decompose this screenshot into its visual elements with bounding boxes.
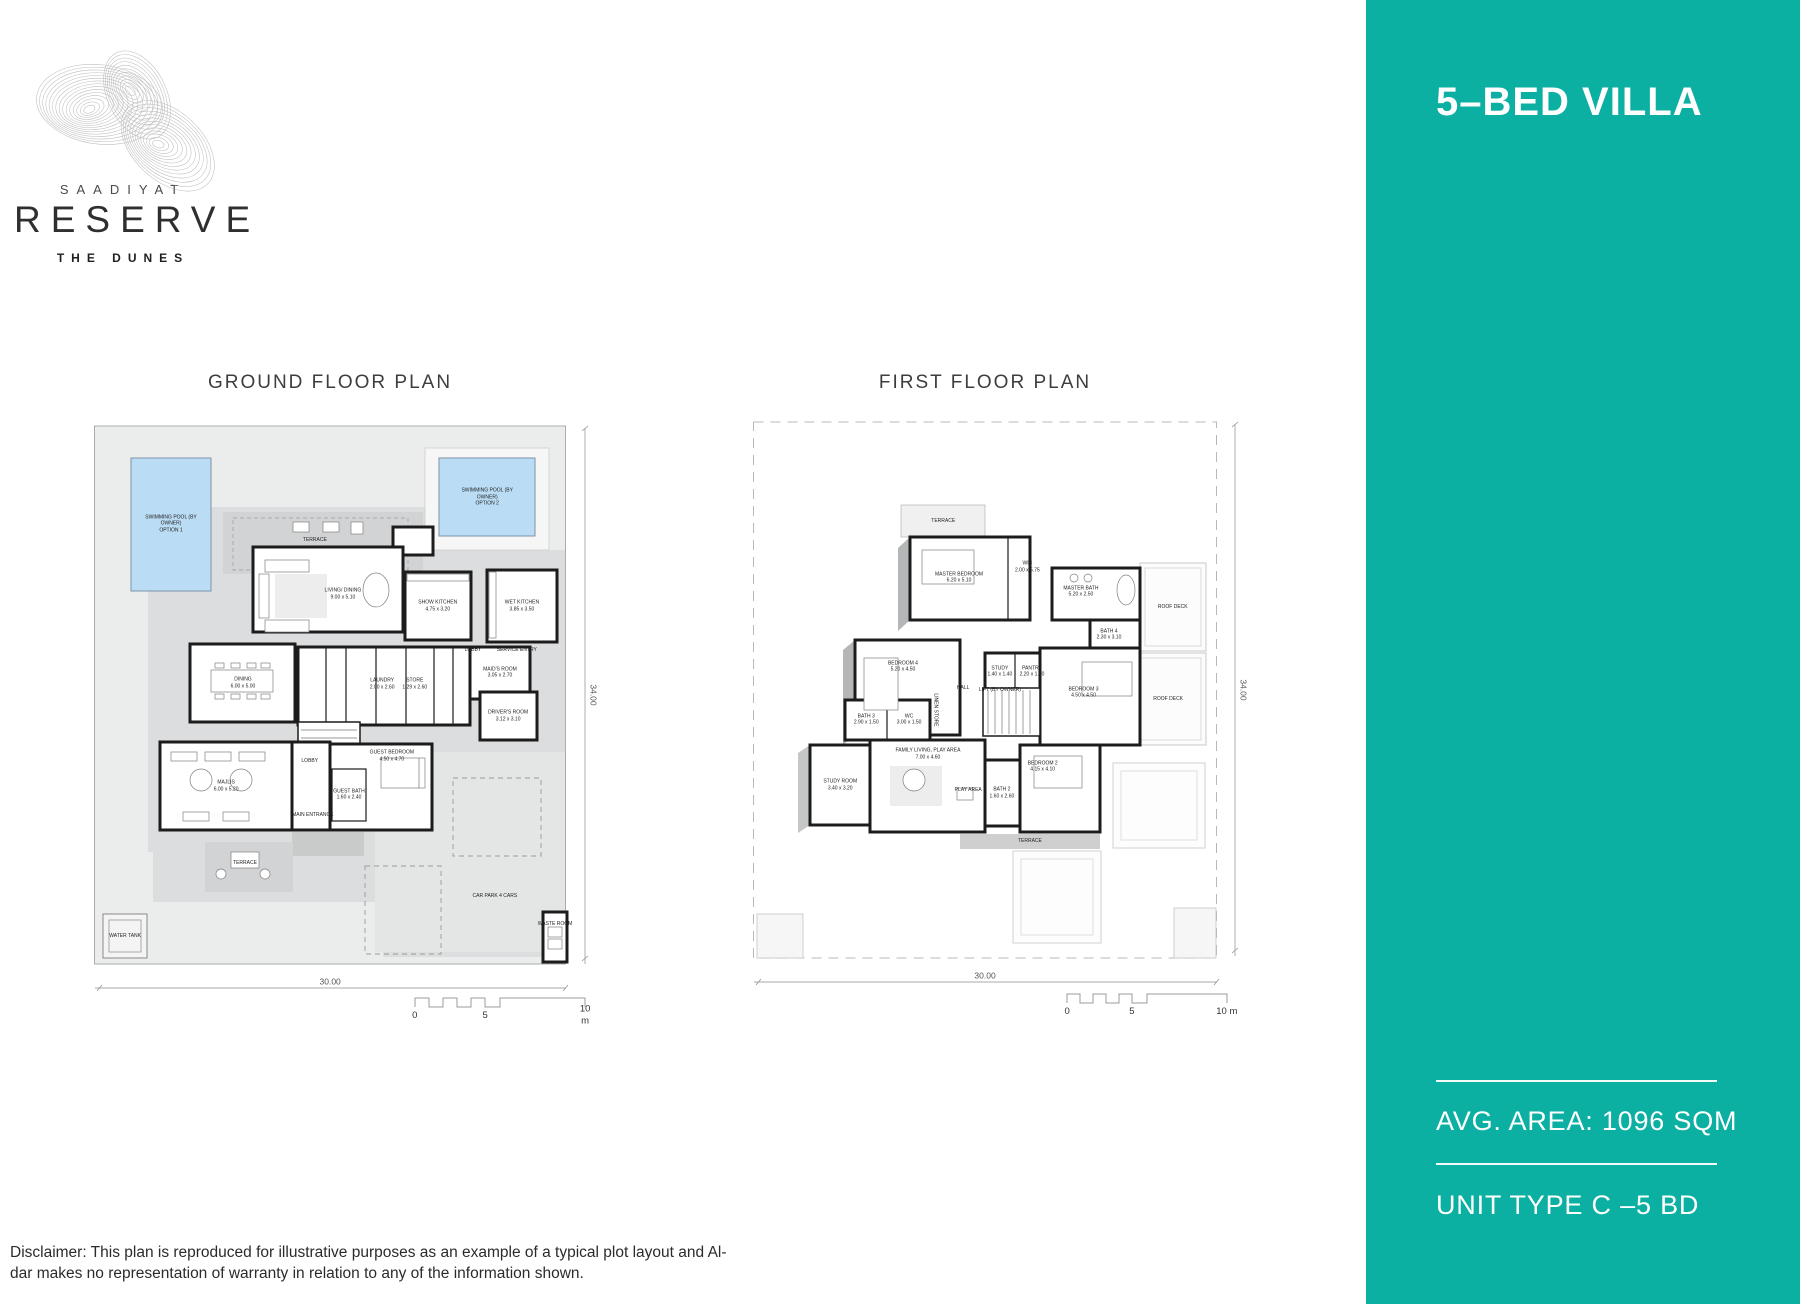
plan-label: 34.00 [587,685,598,706]
plan-label: BEDROOM 4 5.20 x 4.50 [888,660,918,673]
plan-label: STUDY ROOM 3.40 x 3.20 [823,779,857,792]
first-floor-labels: TERRACEMASTER BEDROOM 6.20 x 5.10WIC 2.0… [752,418,1262,1028]
ground-floor-title: GROUND FLOOR PLAN [150,372,510,394]
first-floor-plan: TERRACEMASTER BEDROOM 6.20 x 5.10WIC 2.0… [752,418,1262,1028]
plan-label: LOBBY [465,647,482,654]
plan-label: HALL [957,685,970,692]
plan-label: MAJLIS 6.00 x 5.20 [214,780,239,793]
disclaimer: Disclaimer: This plan is reproduced for … [10,1243,750,1285]
plan-label: LOBBY [301,757,318,764]
ground-floor-plan: SWIMMING POOL (BY OWNER) OPTION 1SWIMMIN… [93,422,603,1032]
plan-label: MAIN ENTRANCE [292,812,333,819]
plan-label: MAID'S ROOM 3.05 x 2.70 [483,666,517,679]
plan-label: BATH 3 2.90 x 1.50 [854,713,879,726]
disclaimer-line-1: Disclaimer: This plan is reproduced for … [10,1243,750,1264]
plan-label: 0 [1065,1006,1070,1018]
plan-label: 5 [1129,1006,1134,1018]
first-floor-title: FIRST FLOOR PLAN [805,372,1165,394]
plan-label: WASTE ROOM [538,921,573,928]
plan-label: BATH 2 1.60 x 2.60 [990,787,1015,800]
plan-label: LAUNDRY 2.00 x 2.60 [370,678,395,691]
plan-label: STUDY 1.40 x 1.40 [987,665,1012,678]
disclaimer-line-2: dar makes no representation of warranty … [10,1264,750,1285]
plan-label: SERVICE ENTRY [497,647,537,654]
plan-label: TERRACE [303,536,327,543]
plan-label: LIFT (BY OWNER) [979,687,1021,694]
brand-logo: SAADIYAT RESERVE THE DUNES [8,26,238,265]
plan-label: WIC 2.00 x 5.75 [1015,561,1040,574]
plan-label: FAMILY LIVING, PLAY AREA 7.00 x 4.60 [895,748,960,761]
plan-label: GUEST BATH 1.60 x 2.40 [333,788,365,801]
plan-label: PLAY AREA [955,787,982,794]
plan-label: ROOF DECK [1153,696,1183,703]
divider [1436,1080,1717,1082]
plan-label: WET KITCHEN 3.85 x 3.50 [505,600,539,613]
plan-label: SWIMMING POOL (BY OWNER) OPTION 1 [145,514,196,534]
plan-label: STORE 1.29 x 2.60 [402,678,427,691]
plan-label: 34.00 [1238,679,1249,700]
plan-label: 30.00 [320,976,341,987]
plan-label: MASTER BATH 5.20 x 2.50 [1063,585,1098,598]
plan-label: SWIMMING POOL (BY OWNER) OPTION 2 [461,487,512,507]
plan-label: LIVING/ DINING 9.00 x 5.10 [325,588,362,601]
plan-label: 0 [412,1010,417,1022]
plan-label: 30.00 [974,971,995,982]
avg-area-text: AVG. AREA: 1096 SQM [1436,1106,1737,1137]
plan-label: TERRACE [1018,837,1042,844]
plan-label: TERRACE [931,518,955,525]
unit-type-text: UNIT TYPE C –5 BD [1436,1190,1699,1221]
plan-label: DRIVER'S ROOM 3.12 x 3.10 [488,710,528,723]
plan-label: WC 3.00 x 1.50 [897,713,922,726]
divider [1436,1163,1717,1165]
brand-name-sub: THE DUNES [8,251,238,265]
plan-label: LINEN STORE [932,694,939,727]
villa-title: 5–BED VILLA [1436,80,1703,125]
plan-label: GUEST BEDROOM 4.50 x 4.70 [370,750,414,763]
plan-label: 10 m [1216,1006,1237,1018]
plan-label: WATER TANK [109,933,141,940]
plan-label: BATH 4 2.30 x 3.10 [1097,628,1122,641]
plan-label: TERRACE [233,860,257,867]
plan-label: ROOF DECK [1158,604,1188,611]
plan-label: BEDROOM 3 4.50 x 4.50 [1068,686,1098,699]
sidebar: 5–BED VILLA AVG. AREA: 1096 SQM UNIT TYP… [1366,0,1800,1304]
plan-label: 5 [483,1010,488,1022]
plan-label: MASTER BEDROOM 6.20 x 5.10 [935,571,983,584]
plan-label: BEDROOM 2 4.15 x 4.10 [1028,760,1058,773]
plan-label: PANTRY 2.20 x 1.60 [1020,665,1045,678]
plan-label: 10 m [576,1004,594,1029]
plan-label: DINING 6.00 x 5.00 [231,677,256,690]
plan-label: CAR PARK 4 CARS [473,893,518,900]
ground-floor-labels: SWIMMING POOL (BY OWNER) OPTION 1SWIMMIN… [93,422,603,1032]
dune-swirl-icon [13,26,233,236]
plan-label: SHOW KITCHEN 4.75 x 3.20 [418,600,457,613]
